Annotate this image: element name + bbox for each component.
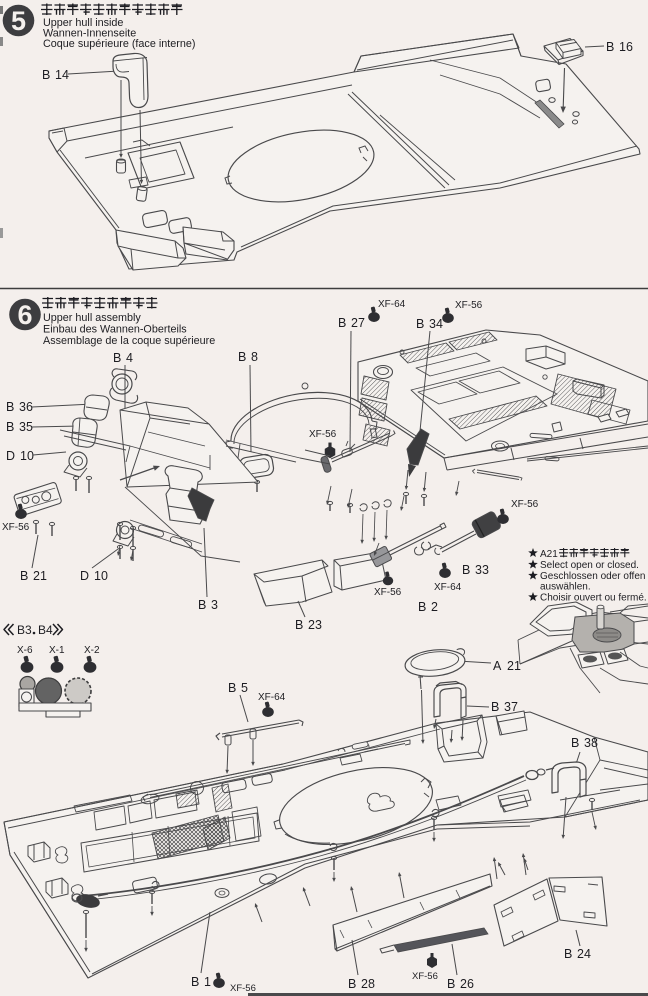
svg-text:XF-56: XF-56 — [230, 983, 256, 994]
svg-text:X-6: X-6 — [17, 645, 33, 656]
svg-text:B: B — [113, 351, 121, 365]
svg-text:XF-56: XF-56 — [2, 522, 30, 533]
svg-text:8: 8 — [251, 350, 258, 364]
svg-text:B: B — [198, 598, 206, 612]
svg-text:B: B — [416, 317, 424, 331]
svg-text:D: D — [80, 569, 89, 583]
svg-text:6: 6 — [17, 300, 32, 330]
svg-text:Choisir ouvert ou fermé.: Choisir ouvert ou fermé. — [540, 593, 647, 604]
svg-text:B: B — [20, 569, 28, 583]
svg-text:B: B — [338, 316, 346, 330]
svg-text:B3: B3 — [17, 623, 32, 637]
svg-text:B: B — [295, 618, 303, 632]
svg-text:Einbau des Wannen-Oberteils: Einbau des Wannen-Oberteils — [43, 324, 187, 336]
svg-text:B: B — [238, 350, 246, 364]
svg-text:34: 34 — [429, 317, 443, 331]
svg-text:27: 27 — [351, 316, 365, 330]
svg-text:Upper hull assembly: Upper hull assembly — [43, 312, 141, 324]
svg-text:B: B — [228, 681, 236, 695]
svg-text:33: 33 — [475, 563, 489, 577]
svg-text:26: 26 — [460, 977, 474, 991]
svg-text:A21: A21 — [540, 549, 558, 560]
svg-text:Assemblage de la coque supérie: Assemblage de la coque supérieure — [43, 335, 215, 347]
svg-text:2: 2 — [431, 600, 438, 614]
svg-text:5: 5 — [11, 6, 26, 36]
svg-text:B: B — [571, 736, 579, 750]
svg-text:28: 28 — [361, 977, 375, 991]
svg-text:B4: B4 — [38, 623, 53, 637]
svg-text:35: 35 — [19, 420, 33, 434]
svg-text:14: 14 — [55, 68, 69, 82]
svg-text:XF-64: XF-64 — [378, 299, 406, 310]
svg-text:XF-56: XF-56 — [374, 587, 402, 598]
svg-text:B: B — [564, 947, 572, 961]
svg-text:X-1: X-1 — [49, 645, 65, 656]
svg-text:XF-56: XF-56 — [412, 971, 438, 982]
svg-text:XF-56: XF-56 — [309, 429, 337, 440]
svg-text:1: 1 — [204, 975, 211, 989]
svg-text:XF-64: XF-64 — [258, 692, 286, 703]
svg-text:B: B — [491, 700, 499, 714]
svg-text:5: 5 — [241, 681, 248, 695]
svg-text:B: B — [447, 977, 455, 991]
svg-text:B: B — [348, 977, 356, 991]
svg-text:XF-56: XF-56 — [455, 300, 483, 311]
svg-text:21: 21 — [507, 659, 521, 673]
svg-text:Coque supérieure (face interne: Coque supérieure (face interne) — [43, 38, 195, 50]
svg-text:auswählen.: auswählen. — [540, 582, 591, 593]
svg-text:16: 16 — [619, 40, 633, 54]
svg-text:X-2: X-2 — [84, 645, 100, 656]
svg-text:24: 24 — [577, 947, 591, 961]
svg-text:B: B — [6, 400, 14, 414]
svg-text:10: 10 — [94, 569, 108, 583]
svg-text:Geschlossen oder offen: Geschlossen oder offen — [540, 571, 645, 582]
svg-text:37: 37 — [504, 700, 518, 714]
svg-text:4: 4 — [126, 351, 133, 365]
svg-text:B: B — [418, 600, 426, 614]
svg-text:38: 38 — [584, 736, 598, 750]
svg-text:XF-56: XF-56 — [511, 499, 539, 510]
svg-text:21: 21 — [33, 569, 47, 583]
svg-text:B: B — [606, 40, 614, 54]
svg-text:A: A — [493, 659, 502, 673]
svg-text:23: 23 — [308, 618, 322, 632]
svg-text:B: B — [6, 420, 14, 434]
svg-text:10: 10 — [20, 449, 34, 463]
svg-text:3: 3 — [211, 598, 218, 612]
svg-text:36: 36 — [19, 400, 33, 414]
svg-text:Select open or closed.: Select open or closed. — [540, 560, 639, 571]
svg-text:B: B — [462, 563, 470, 577]
svg-text:B: B — [42, 68, 50, 82]
svg-text:D: D — [6, 449, 15, 463]
svg-text:XF-64: XF-64 — [434, 582, 462, 593]
svg-text:B: B — [191, 975, 199, 989]
